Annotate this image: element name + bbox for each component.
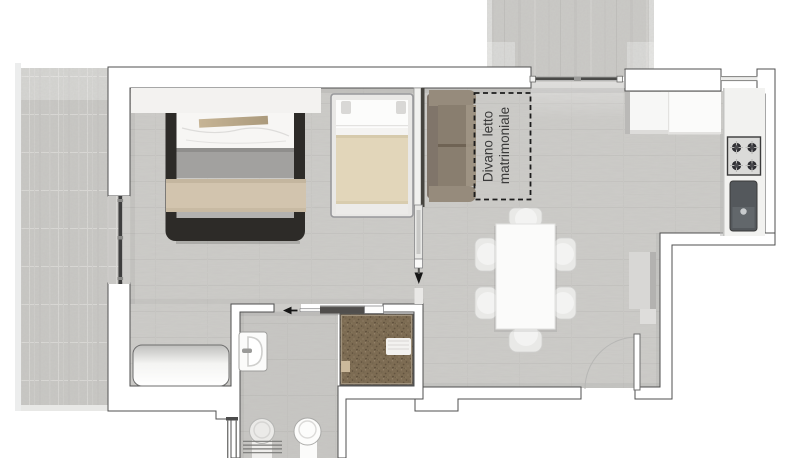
svg-text:matrimoniale: matrimoniale bbox=[497, 107, 512, 184]
svg-text:Divano letto: Divano letto bbox=[481, 111, 496, 182]
